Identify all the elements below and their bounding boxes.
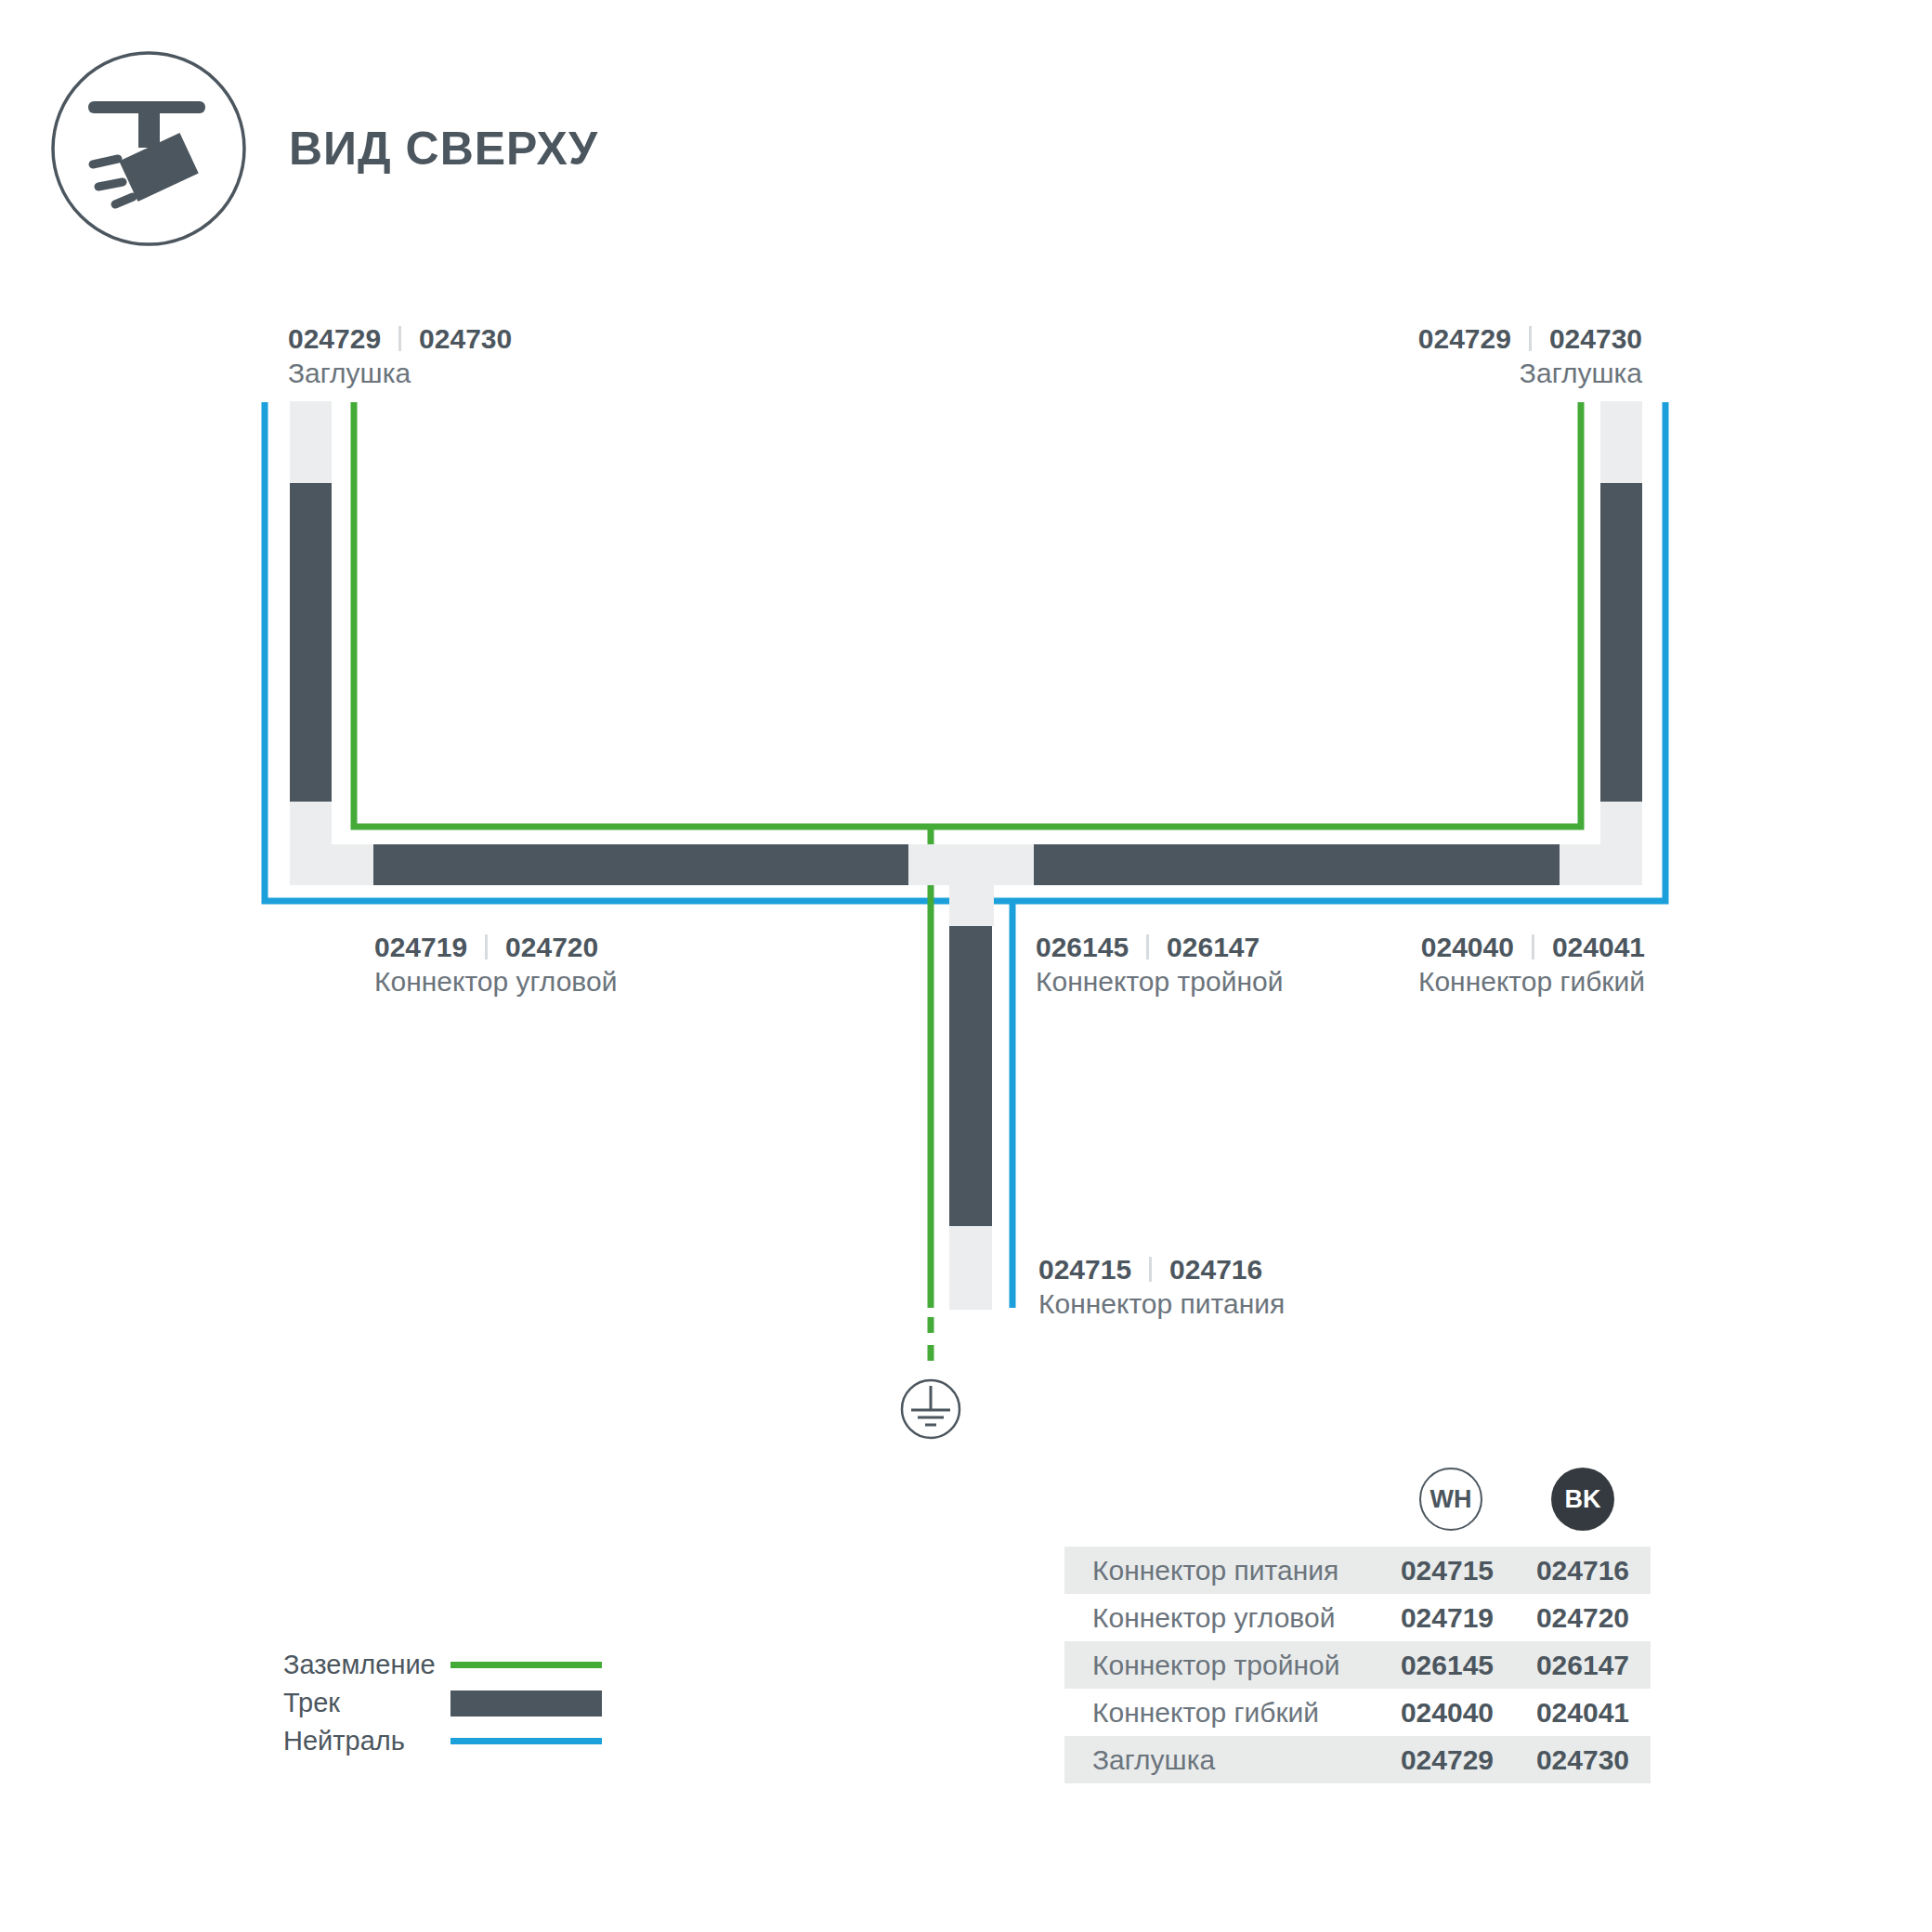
row-bk-code: 024041 [1515, 1697, 1651, 1729]
code-wh: 026145 [1036, 932, 1129, 962]
part-name: Коннектор угловой [374, 965, 617, 999]
row-name: Коннектор питания [1064, 1555, 1379, 1586]
row-wh-code: 024040 [1379, 1697, 1515, 1729]
table-row: Заглушка024729024730 [1064, 1736, 1651, 1783]
part-name: Коннектор питания [1038, 1287, 1285, 1321]
part-name: Заглушка [288, 357, 512, 390]
code-wh: 024729 [288, 323, 381, 354]
track-vertical-left [290, 483, 332, 802]
part-codes: 024729024730 [1418, 321, 1642, 357]
legend: Заземление Трек Нейтраль [283, 1646, 602, 1760]
table-row: Коннектор питания024715024716 [1064, 1547, 1651, 1594]
label-corner-connector: 024719024720 Коннектор угловой [374, 930, 617, 999]
code-separator [1532, 934, 1534, 959]
track-vertical-stem [949, 926, 992, 1226]
parts-table: WH BK Коннектор питания024715024716 Конн… [1064, 1468, 1651, 1783]
code-bk: 024720 [505, 932, 598, 962]
legend-label: Заземление [283, 1650, 450, 1680]
wh-badge: WH [1419, 1468, 1482, 1531]
legend-label: Нейтраль [283, 1726, 450, 1756]
row-name: Коннектор гибкий [1064, 1697, 1379, 1729]
code-bk: 024716 [1169, 1254, 1262, 1285]
table-row: Коннектор угловой024719024720 [1064, 1594, 1651, 1641]
label-endcap-left: 024729024730 Заглушка [288, 321, 512, 390]
label-triple-connector: 026145026147 Коннектор тройной [1036, 930, 1283, 999]
part-codes: 024729024730 [288, 321, 512, 357]
code-bk: 024730 [1549, 323, 1642, 354]
code-bk: 024730 [419, 323, 512, 354]
bk-badge: BK [1551, 1468, 1614, 1531]
code-separator [398, 326, 401, 351]
part-name: Заглушка [1418, 357, 1642, 390]
legend-row-ground: Заземление [283, 1646, 602, 1684]
track-horizontal-left [373, 844, 908, 885]
label-endcap-right: 024729024730 Заглушка [1418, 321, 1642, 390]
code-separator [1146, 934, 1149, 959]
part-codes: 026145026147 [1036, 930, 1283, 965]
code-wh: 024729 [1418, 323, 1511, 354]
code-wh: 024040 [1421, 932, 1514, 962]
track-vertical-right [1600, 483, 1642, 802]
legend-row-neutral: Нейтраль [283, 1722, 602, 1760]
track-horizontal-right [1034, 844, 1560, 885]
bk-badge-label: BK [1565, 1485, 1601, 1514]
ground-line [354, 402, 1581, 827]
corner-connector-left [290, 802, 373, 885]
row-wh-code: 024719 [1379, 1602, 1515, 1634]
row-name: Заглушка [1064, 1744, 1379, 1776]
row-wh-code: 024715 [1379, 1555, 1515, 1586]
row-wh-code: 024729 [1379, 1744, 1515, 1776]
code-wh: 024719 [374, 932, 467, 962]
row-bk-code: 024730 [1515, 1744, 1651, 1776]
code-separator [1149, 1257, 1152, 1282]
earth-ground-icon [902, 1380, 959, 1438]
table-row: Коннектор тройной026145026147 [1064, 1641, 1651, 1689]
ground-line-swatch [450, 1662, 602, 1668]
power-connector [949, 1226, 992, 1310]
code-bk: 026147 [1167, 932, 1260, 962]
label-power-connector: 024715024716 Коннектор питания [1038, 1252, 1285, 1321]
table-row: Коннектор гибкий024040024041 [1064, 1689, 1651, 1736]
legend-label: Трек [283, 1688, 450, 1718]
code-separator [485, 934, 488, 959]
part-name: Коннектор гибкий [1418, 965, 1645, 999]
row-bk-code: 024720 [1515, 1602, 1651, 1634]
part-codes: 024040024041 [1418, 930, 1645, 965]
code-wh: 024715 [1038, 1254, 1131, 1285]
row-wh-code: 026145 [1379, 1650, 1515, 1681]
legend-row-track: Трек [283, 1684, 602, 1722]
top-view-page: ВИД СВЕРХУ 024729024730 Заглушка [0, 0, 1932, 1932]
row-name: Коннектор угловой [1064, 1602, 1379, 1634]
endcap-right-shape [1600, 401, 1642, 483]
track-swatch [450, 1690, 602, 1717]
part-codes: 024719024720 [374, 930, 617, 965]
endcap-left-shape [290, 401, 332, 483]
row-name: Коннектор тройной [1064, 1650, 1379, 1681]
row-bk-code: 024716 [1515, 1555, 1651, 1586]
code-separator [1529, 326, 1532, 351]
corner-connector-right [1560, 802, 1642, 885]
part-name: Коннектор тройной [1036, 965, 1283, 999]
code-bk: 024041 [1552, 932, 1645, 962]
row-bk-code: 026147 [1515, 1650, 1651, 1681]
wh-badge-label: WH [1430, 1485, 1472, 1514]
label-flex-connector: 024040024041 Коннектор гибкий [1418, 930, 1645, 999]
neutral-line-swatch [450, 1738, 602, 1744]
part-codes: 024715024716 [1038, 1252, 1285, 1287]
